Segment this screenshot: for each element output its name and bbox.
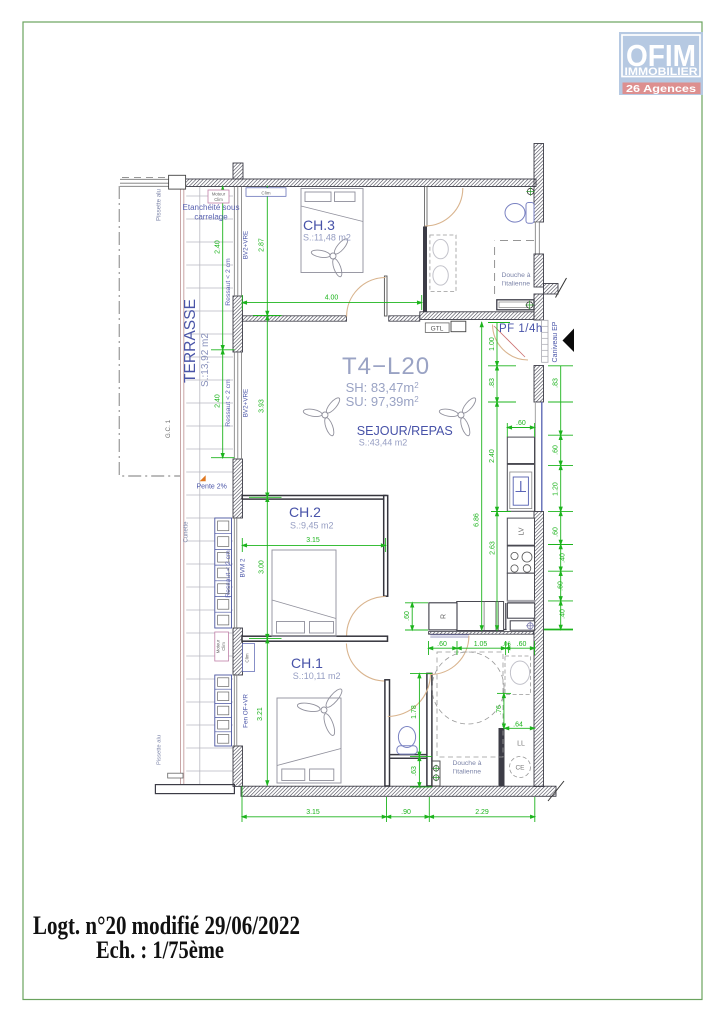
svg-text:GTL: GTL [431,326,444,333]
svg-text:Clim: Clim [245,653,250,662]
svg-text:PF 1/4h: PF 1/4h [499,323,543,335]
svg-text:S.:10,11 m2: S.:10,11 m2 [293,671,341,681]
svg-text:BV2+VRE: BV2+VRE [243,231,250,260]
svg-text:Pissette alu: Pissette alu [156,188,163,221]
svg-text:Ressaut < 2 cm: Ressaut < 2 cm [225,258,232,306]
svg-text:.60: .60 [517,641,527,648]
svg-text:.40: .40 [560,609,567,619]
svg-text:.60: .60 [553,527,560,537]
svg-text:.60: .60 [516,420,526,427]
svg-text:CH.1: CH.1 [291,655,323,671]
svg-text:Moteur: Moteur [216,639,221,653]
svg-text:TERRASSE: TERRASSE [182,299,199,383]
svg-text:Ressaut < 2 cm: Ressaut < 2 cm [225,379,232,427]
svg-text:Clim: Clim [214,197,223,202]
svg-text:2.40: 2.40 [215,240,222,254]
svg-text:.63: .63 [411,766,418,776]
svg-text:S.:11,48 m2: S.:11,48 m2 [303,233,351,243]
svg-text:2.40: 2.40 [489,449,496,463]
svg-text:1.78: 1.78 [411,705,418,719]
svg-text:Ressaut < 2 cm: Ressaut < 2 cm [225,550,232,598]
svg-text:1.00: 1.00 [489,337,496,351]
svg-text:l'italienne: l'italienne [502,281,530,288]
svg-text:Douche à: Douche à [452,760,481,767]
svg-text:LV: LV [519,527,526,535]
svg-text:SEJOUR/REPAS: SEJOUR/REPAS [357,424,453,438]
svg-text:.83: .83 [489,378,496,388]
svg-text:S.:13,92 m2: S.:13,92 m2 [200,333,211,387]
svg-text:R: R [441,614,448,619]
svg-text:.60: .60 [404,611,411,621]
svg-text:l'italienne: l'italienne [453,769,481,776]
svg-text:3.00: 3.00 [259,560,266,574]
svg-text:G.C. 1: G.C. 1 [165,419,172,438]
svg-text:2.63: 2.63 [489,541,496,555]
svg-text:Douche à: Douche à [501,272,530,279]
svg-text:.64: .64 [513,722,523,729]
svg-text:S.:9,45 m2: S.:9,45 m2 [290,521,334,531]
svg-text:Pente 2%: Pente 2% [197,484,227,491]
svg-text:26 Agences: 26 Agences [626,83,696,95]
svg-text:BVM 2: BVM 2 [240,558,247,577]
svg-text:Logt. n°20 modifié 29/06/2022: Logt. n°20 modifié 29/06/2022 [33,911,300,940]
svg-text:CH.3: CH.3 [303,217,335,233]
svg-text:3.15: 3.15 [306,809,320,816]
svg-text:3.21: 3.21 [257,707,264,721]
svg-text:Moteur: Moteur [212,192,226,197]
svg-text:T4−L20: T4−L20 [342,353,430,380]
svg-text:.83: .83 [553,378,560,388]
svg-text:.60: .60 [558,581,565,591]
svg-text:CE: CE [515,765,525,772]
svg-text:SU: 97,39m2: SU: 97,39m2 [346,394,420,409]
svg-text:2.40: 2.40 [215,394,222,408]
svg-text:3.15: 3.15 [306,537,320,544]
svg-text:.06: .06 [502,642,511,648]
svg-text:.76: .76 [496,705,503,715]
svg-text:.60: .60 [437,641,447,648]
svg-text:LL: LL [517,741,525,748]
svg-text:Ech. : 1/75ème: Ech. : 1/75ème [96,937,224,964]
svg-text:Pissette alu: Pissette alu [157,735,163,765]
svg-text:carrelage: carrelage [194,213,228,222]
svg-text:6.86: 6.86 [473,513,480,527]
svg-text:1.05: 1.05 [474,641,488,648]
svg-text:3.93: 3.93 [259,399,266,413]
svg-text:1.20: 1.20 [553,482,560,496]
svg-text:Caniveau EP: Caniveau EP [552,321,559,362]
svg-text:CH.2: CH.2 [289,504,321,520]
svg-text:.90: .90 [401,809,411,816]
svg-text:S.:43,44 m2: S.:43,44 m2 [359,438,408,448]
svg-text:BV2+VRE: BV2+VRE [243,389,250,418]
svg-text:Fen OF+VR: Fen OF+VR [243,694,250,728]
svg-text:IMMOBILIER: IMMOBILIER [625,66,698,78]
svg-text:SH: 83,47m2: SH: 83,47m2 [346,380,420,395]
svg-text:Cunette: Cunette [184,521,190,543]
svg-text:.60: .60 [553,445,560,455]
svg-text:Etanchéité sous: Etanchéité sous [183,203,240,212]
svg-text:2.87: 2.87 [259,238,266,252]
svg-text:4.00: 4.00 [325,295,339,302]
svg-text:Clim: Clim [261,190,270,195]
svg-text:Clim: Clim [221,642,226,651]
svg-text:2.29: 2.29 [475,809,489,816]
svg-text:.40: .40 [560,553,567,563]
